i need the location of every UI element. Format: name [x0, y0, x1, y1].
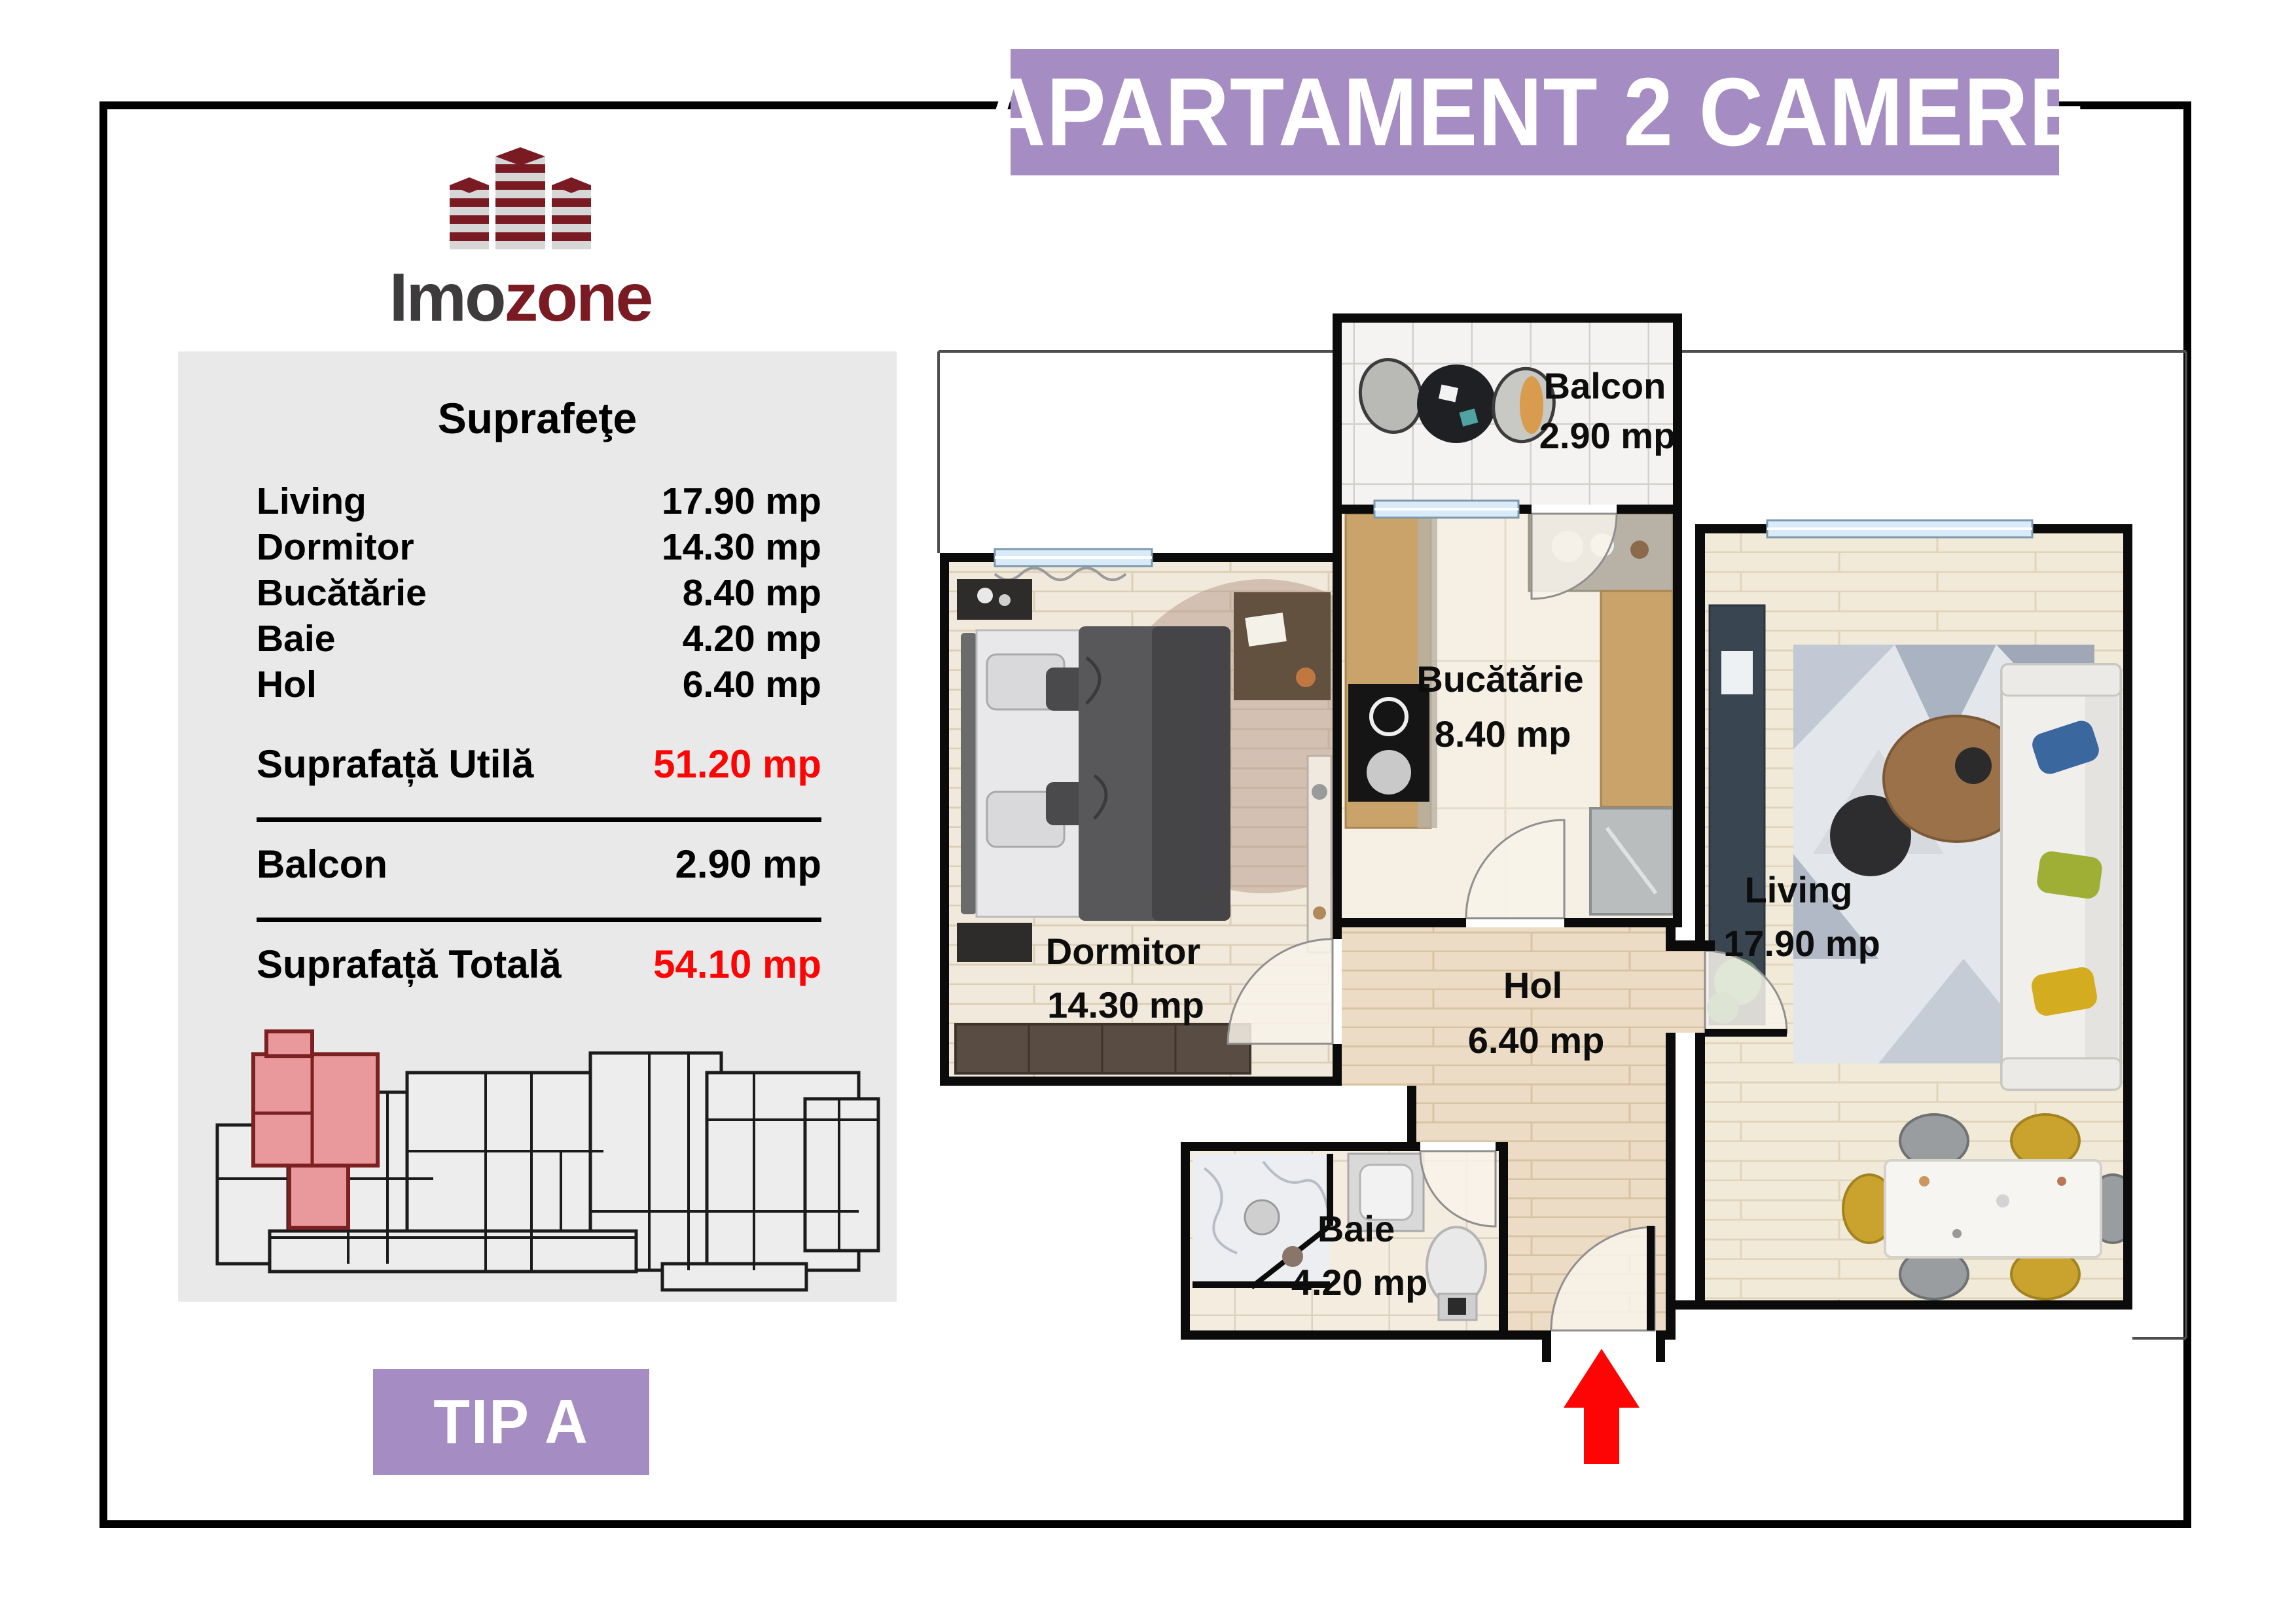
pillow-green [2036, 850, 2104, 901]
kitchen-window [1374, 501, 1518, 518]
sofa [2001, 664, 2121, 1090]
summary-row-totala: Suprafață Totală54.10 mp [178, 942, 897, 1003]
entrance-door-leaf [1647, 1226, 1655, 1330]
living-area: 17.90 mp [1723, 923, 1880, 964]
brand-name: Imozone [367, 264, 674, 332]
areas-panel: Suprafeţe Living17.90 mp Dormitor14.30 m… [178, 351, 897, 1302]
dining-table [1885, 1160, 2101, 1257]
page-title: APARTAMENT 2 CAMERE [981, 57, 2089, 168]
bedroom-label: Dormitor [1046, 931, 1200, 972]
kitchen-area: 8.40 mp [1435, 713, 1571, 755]
type-badge: TIP A [373, 1369, 649, 1475]
nightstand [957, 923, 1032, 962]
divider [257, 918, 821, 922]
hall-area: 6.40 mp [1468, 1020, 1605, 1061]
poster-page: APARTAMENT 2 CAMERE Imozone Suprafeţe Li… [0, 0, 2296, 1623]
shower-head [1245, 1200, 1279, 1234]
balcony-table [1417, 365, 1496, 443]
table-row: Bucătărie8.40 mp [178, 571, 897, 617]
areas-summary: Suprafață Utilă51.20 mp Balcon2.90 mp Su… [178, 741, 897, 1003]
desk [1234, 592, 1331, 700]
balcony-area: 2.90 mp [1539, 415, 1676, 456]
imozone-logo: Imozone [367, 147, 674, 332]
building-overview-miniplan [191, 1015, 884, 1296]
apartment-floorplan: Balcon 2.90 mp Bucătărie 8.40 mp Dormito… [910, 298, 2206, 1482]
bathroom-area: 4.20 mp [1291, 1262, 1428, 1303]
bed-headboard [961, 633, 977, 914]
living-door-leaf [1705, 1029, 1787, 1037]
divider [257, 817, 821, 822]
hall-label: Hol [1503, 965, 1562, 1006]
bathroom-label: Baie [1318, 1208, 1395, 1249]
areas-table: Living17.90 mp Dormitor14.30 mp Bucătări… [178, 480, 897, 709]
summary-row-balcon: Balcon2.90 mp [178, 842, 897, 903]
entrance-arrow [1564, 1349, 1640, 1464]
living-window [1767, 520, 2032, 537]
header-banner: APARTAMENT 2 CAMERE [1011, 49, 2059, 175]
balcony-label: Balcon [1544, 365, 1666, 406]
nightstand [957, 579, 1032, 620]
summary-row-utila: Suprafață Utilă51.20 mp [178, 741, 897, 803]
bedroom-area: 14.30 mp [1047, 984, 1204, 1026]
living-label: Living [1745, 869, 1853, 910]
table-row: Living17.90 mp [178, 480, 897, 526]
table-row: Dormitor14.30 mp [178, 526, 897, 571]
areas-title: Suprafeţe [178, 393, 897, 443]
kitchen-label: Bucătărie [1416, 658, 1583, 700]
table-row: Hol6.40 mp [178, 663, 897, 709]
buildings-icon [438, 147, 603, 259]
table-row: Baie4.20 mp [178, 617, 897, 663]
kitchen-counter-right [1601, 591, 1673, 807]
bedroom-window [995, 549, 1152, 566]
kitchen-sink [1367, 750, 1411, 794]
